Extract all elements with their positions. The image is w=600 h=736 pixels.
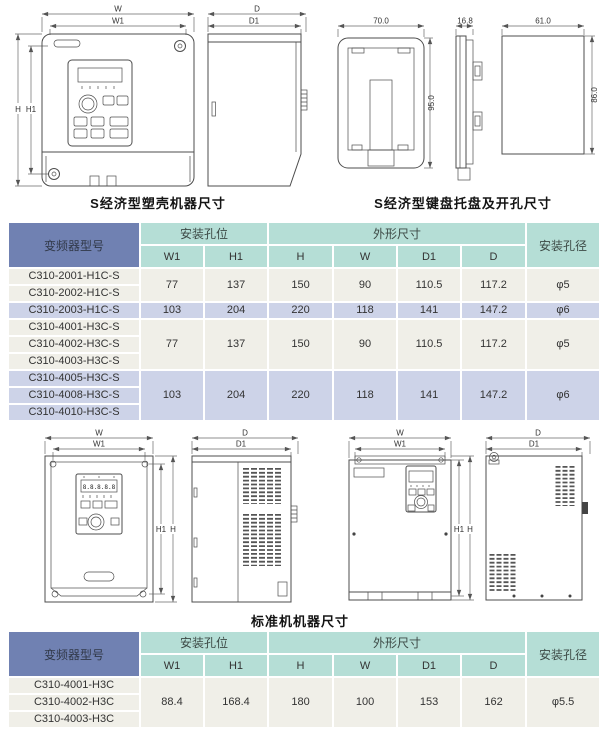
d-value-cell: 147.2: [462, 371, 525, 420]
side-body-outline: [192, 456, 291, 602]
col-header-outline-dims: 外形尺寸: [269, 632, 525, 653]
s-economy-side-view-diagram: D D1: [202, 4, 310, 190]
w-value-cell: 118: [334, 371, 396, 420]
d1-value-cell: 141: [398, 371, 460, 420]
cutout-outline: [502, 36, 584, 154]
dim-label-w: W: [396, 429, 404, 438]
tray-clips: [473, 62, 482, 130]
h-value-cell: 180: [269, 678, 332, 727]
col-header-d1: D1: [398, 246, 460, 267]
col-header-d: D: [462, 246, 525, 267]
keypad-tray-side-diagram: 16.8: [440, 16, 494, 188]
model-cell: C310-4001-H3C-S: [9, 320, 139, 335]
col-header-mounting-holes: 安装孔位: [141, 632, 267, 653]
d-value-cell: 117.2: [462, 269, 525, 301]
standard-dimensions-table: 变频器型号 安装孔位 外形尺寸 安装孔径 W1 H1 H W D1 D C310…: [7, 630, 600, 729]
col-header-outline-dims: 外形尺寸: [269, 223, 525, 244]
dim-label-w: W: [95, 429, 103, 438]
table-row: C310-4005-H3C-S 103 204 220 118 141 147.…: [9, 371, 599, 386]
caption-standard-machine: 标准机机器尺寸: [0, 611, 600, 630]
hole-dia-cell: φ5.5: [527, 678, 599, 727]
col-header-hole-diameter: 安装孔径: [527, 223, 599, 267]
h-value-cell: 220: [269, 371, 332, 420]
col-header-mounting-holes: 安装孔位: [141, 223, 267, 244]
tray-outline: [338, 38, 424, 168]
h-value-cell: 150: [269, 320, 332, 369]
dim-label-d1: D1: [236, 440, 247, 449]
d-value-cell: 162: [462, 678, 525, 727]
w1-value-cell: 103: [141, 303, 203, 318]
model-cell: C310-4002-H3C-S: [9, 337, 139, 352]
table-row: C310-4001-H3C 88.4 168.4 180 100 153 162…: [9, 678, 599, 693]
col-header-model: 变频器型号: [9, 223, 139, 267]
d-value-cell: 117.2: [462, 320, 525, 369]
d1-value-cell: 141: [398, 303, 460, 318]
dim-label-h: H: [170, 525, 176, 534]
col-header-d: D: [462, 655, 525, 676]
model-cell: C310-4008-H3C-S: [9, 388, 139, 403]
inverter-body-outline: [42, 34, 194, 186]
side-body-outline: [208, 34, 301, 186]
dimension-w1: [355, 449, 445, 458]
col-header-model: 变频器型号: [9, 632, 139, 676]
keypad-tray-front-diagram: 70.0 95.0: [326, 16, 436, 188]
large-standard-front-view-diagram: W W1 H1: [328, 430, 478, 610]
keypad: [406, 466, 436, 512]
manual-dimensions-page: W W1 H H1: [0, 0, 600, 736]
model-cell: C310-4003-H3C: [9, 712, 139, 727]
s-economy-dimensions-table: 变频器型号 安装孔位 外形尺寸 安装孔径 W1 H1 H W D1 D C310…: [7, 221, 600, 422]
dim-label-tray-depth: 16.8: [457, 17, 473, 26]
dim-label-d: D: [254, 5, 260, 14]
model-cell: C310-4005-H3C-S: [9, 371, 139, 386]
table-row: C310-4001-H3C-S 77 137 150 90 110.5 117.…: [9, 320, 599, 335]
table-row: C310-2003-H1C-S 103 204 220 118 141 147.…: [9, 303, 599, 318]
large-standard-side-view-diagram: D D1: [480, 430, 600, 610]
dimension-tray-depth: [456, 26, 473, 35]
h1-value-cell: 204: [205, 371, 267, 420]
potentiometer-knob: [291, 506, 297, 522]
w1-value-cell: 77: [141, 269, 203, 301]
dim-label-w1: W1: [93, 440, 106, 449]
col-header-h: H: [269, 246, 332, 267]
model-cell: C310-4001-H3C: [9, 678, 139, 693]
dim-label-d1: D1: [529, 440, 540, 449]
d1-value-cell: 153: [398, 678, 460, 727]
h1-value-cell: 137: [205, 320, 267, 369]
model-cell: C310-2002-H1C-S: [9, 286, 139, 301]
dim-label-h: H: [15, 105, 21, 114]
model-cell: C310-4003-H3C-S: [9, 354, 139, 369]
w1-value-cell: 77: [141, 320, 203, 369]
keypad: [76, 474, 122, 534]
w1-value-cell: 88.4: [141, 678, 203, 727]
caption-s-keypad-tray: S经济型键盘托盘及开孔尺寸: [326, 193, 600, 212]
model-cell: C310-4010-H3C-S: [9, 405, 139, 420]
caption-s-plastic-machine: S经济型塑壳机器尺寸: [8, 193, 308, 212]
dim-label-cutout-height: 86.0: [590, 87, 599, 103]
hole-dia-cell: φ5: [527, 320, 599, 369]
dimension-w1: [53, 449, 145, 460]
col-header-w: W: [334, 246, 396, 267]
col-header-w1: W1: [141, 655, 203, 676]
w-value-cell: 90: [334, 320, 396, 369]
h-value-cell: 220: [269, 303, 332, 318]
dim-label-tray-width: 70.0: [373, 17, 389, 26]
keypad: [68, 60, 132, 146]
table-row: C310-2001-H1C-S 77 137 150 90 110.5 117.…: [9, 269, 599, 284]
col-header-h: H: [269, 655, 332, 676]
w-value-cell: 100: [334, 678, 396, 727]
dim-label-w1: W1: [112, 17, 125, 26]
col-header-h1: H1: [205, 655, 267, 676]
dim-label-d: D: [535, 429, 541, 438]
d-value-cell: 147.2: [462, 303, 525, 318]
dimension-tray-width: [338, 26, 424, 37]
potentiometer-knob: [301, 90, 307, 110]
standard-side-view-diagram: D D1: [184, 430, 306, 610]
h1-value-cell: 168.4: [205, 678, 267, 727]
dim-label-h1: H1: [156, 525, 167, 534]
dimension-d1: [486, 449, 582, 458]
vent-grid-top-right: [558, 466, 572, 506]
w-value-cell: 118: [334, 303, 396, 318]
d1-value-cell: 110.5: [398, 269, 460, 301]
model-cell: C310-4002-H3C: [9, 695, 139, 710]
hole-dia-cell: φ6: [527, 371, 599, 420]
dimension-d1: [192, 449, 291, 458]
w-value-cell: 90: [334, 269, 396, 301]
vent-grid-bottom-left: [492, 554, 513, 592]
dim-label-d1: D1: [249, 17, 260, 26]
tray-side-outline: [456, 36, 473, 180]
h-value-cell: 150: [269, 269, 332, 301]
col-header-w: W: [334, 655, 396, 676]
dim-label-tray-height: 95.0: [427, 95, 436, 111]
led-display: 8.8.8.8.8: [83, 484, 116, 491]
col-header-d1: D1: [398, 655, 460, 676]
dim-label-h1: H1: [26, 105, 37, 114]
s-economy-front-view-diagram: W W1 H H1: [8, 4, 200, 190]
dim-label-d: D: [242, 429, 248, 438]
model-cell: C310-2003-H1C-S: [9, 303, 139, 318]
col-header-hole-diameter: 安装孔径: [527, 632, 599, 676]
vent-grid-bottom: [246, 514, 278, 566]
h1-value-cell: 137: [205, 269, 267, 301]
hole-dia-cell: φ6: [527, 303, 599, 318]
d1-value-cell: 110.5: [398, 320, 460, 369]
w1-value-cell: 103: [141, 371, 203, 420]
standard-front-view-diagram: W W1 8.8.8.8.8 H1: [12, 430, 180, 610]
h1-value-cell: 204: [205, 303, 267, 318]
col-header-h1: H1: [205, 246, 267, 267]
dim-label-h: H: [467, 525, 473, 534]
col-header-w1: W1: [141, 246, 203, 267]
model-cell: C310-2001-H1C-S: [9, 269, 139, 284]
side-knob: [582, 502, 588, 514]
dim-label-h1: H1: [454, 525, 465, 534]
dimension-cutout-width: [502, 26, 584, 35]
dim-label-cutout-width: 61.0: [535, 17, 551, 26]
dim-label-w1: W1: [394, 440, 407, 449]
dim-label-w: W: [114, 5, 122, 14]
keypad-cutout-diagram: 61.0 86.0: [494, 16, 600, 188]
hole-dia-cell: φ5: [527, 269, 599, 301]
vent-grid-top: [246, 468, 278, 504]
